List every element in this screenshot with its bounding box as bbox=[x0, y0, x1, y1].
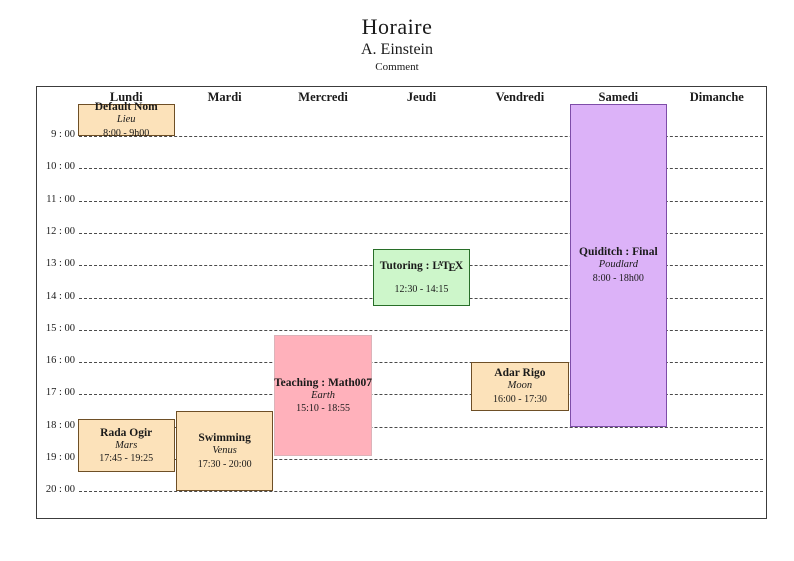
schedule-page: Horaire A. Einstein Comment LundiMardiMe… bbox=[0, 0, 794, 561]
title-block: Horaire A. Einstein Comment bbox=[0, 14, 794, 73]
event-venue: Poudlard bbox=[599, 259, 638, 271]
event-title: Default Nom bbox=[95, 101, 158, 114]
time-label-15: 15 : 00 bbox=[39, 323, 75, 334]
time-label-17: 17 : 00 bbox=[39, 387, 75, 398]
time-label-13: 13 : 00 bbox=[39, 258, 75, 269]
event-adar-rigo: Adar RigoMoon16:00 - 17:30 bbox=[471, 362, 568, 410]
hour-gridline-20 bbox=[79, 491, 763, 492]
time-label-11: 11 : 00 bbox=[39, 194, 75, 205]
time-label-9: 9 : 00 bbox=[39, 129, 75, 140]
event-time: 17:45 - 19:25 bbox=[99, 453, 153, 464]
event-venue: Lieu bbox=[117, 114, 136, 126]
time-label-19: 19 : 00 bbox=[39, 452, 75, 463]
event-venue: Venus bbox=[212, 445, 237, 457]
day-header-mercredi: Mercredi bbox=[274, 90, 372, 105]
event-teaching-math007: Teaching : Math007Earth15:10 - 18:55 bbox=[274, 335, 371, 456]
event-title: Teaching : Math007 bbox=[274, 377, 372, 390]
event-venue: Earth bbox=[311, 390, 335, 402]
time-label-16: 16 : 00 bbox=[39, 355, 75, 366]
time-label-20: 20 : 00 bbox=[39, 484, 75, 495]
event-time: 17:30 - 20:00 bbox=[198, 459, 252, 470]
event-title: Rada Ogir bbox=[100, 427, 152, 440]
event-tutoring-latex: Tutoring : LATEX12:30 - 14:15 bbox=[373, 249, 470, 306]
page-title: Horaire bbox=[0, 14, 794, 40]
event-venue: Moon bbox=[508, 380, 533, 392]
event-time: 8:00 - 18h00 bbox=[593, 273, 644, 284]
day-header-dimanche: Dimanche bbox=[668, 90, 766, 105]
event-time: 12:30 - 14:15 bbox=[395, 284, 449, 295]
event-title: Swimming bbox=[198, 432, 250, 445]
time-label-12: 12 : 00 bbox=[39, 226, 75, 237]
day-header-samedi: Samedi bbox=[569, 90, 667, 105]
page-comment: Comment bbox=[0, 61, 794, 73]
event-time: 15:10 - 18:55 bbox=[296, 403, 350, 414]
event-rada-ogir: Rada OgirMars17:45 - 19:25 bbox=[78, 419, 175, 473]
time-label-10: 10 : 00 bbox=[39, 161, 75, 172]
time-label-14: 14 : 00 bbox=[39, 291, 75, 302]
event-swimming: SwimmingVenus17:30 - 20:00 bbox=[176, 411, 273, 492]
event-time: 16:00 - 17:30 bbox=[493, 394, 547, 405]
time-label-18: 18 : 00 bbox=[39, 420, 75, 431]
event-title: Quiditch : Final bbox=[579, 246, 658, 259]
event-title: Adar Rigo bbox=[494, 367, 545, 380]
day-header-mardi: Mardi bbox=[175, 90, 273, 105]
event-title: Tutoring : LATEX bbox=[380, 260, 463, 275]
schedule-grid: LundiMardiMercrediJeudiVendrediSamediDim… bbox=[36, 86, 767, 519]
event-quiditch-final: Quiditch : FinalPoudlard8:00 - 18h00 bbox=[570, 104, 667, 427]
event-venue: Mars bbox=[115, 440, 137, 452]
event-default-nom: Default NomLieu8:00 - 9h00 bbox=[78, 104, 175, 136]
event-time: 8:00 - 9h00 bbox=[103, 128, 149, 139]
day-header-vendredi: Vendredi bbox=[471, 90, 569, 105]
day-header-jeudi: Jeudi bbox=[372, 90, 470, 105]
page-author: A. Einstein bbox=[0, 41, 794, 59]
